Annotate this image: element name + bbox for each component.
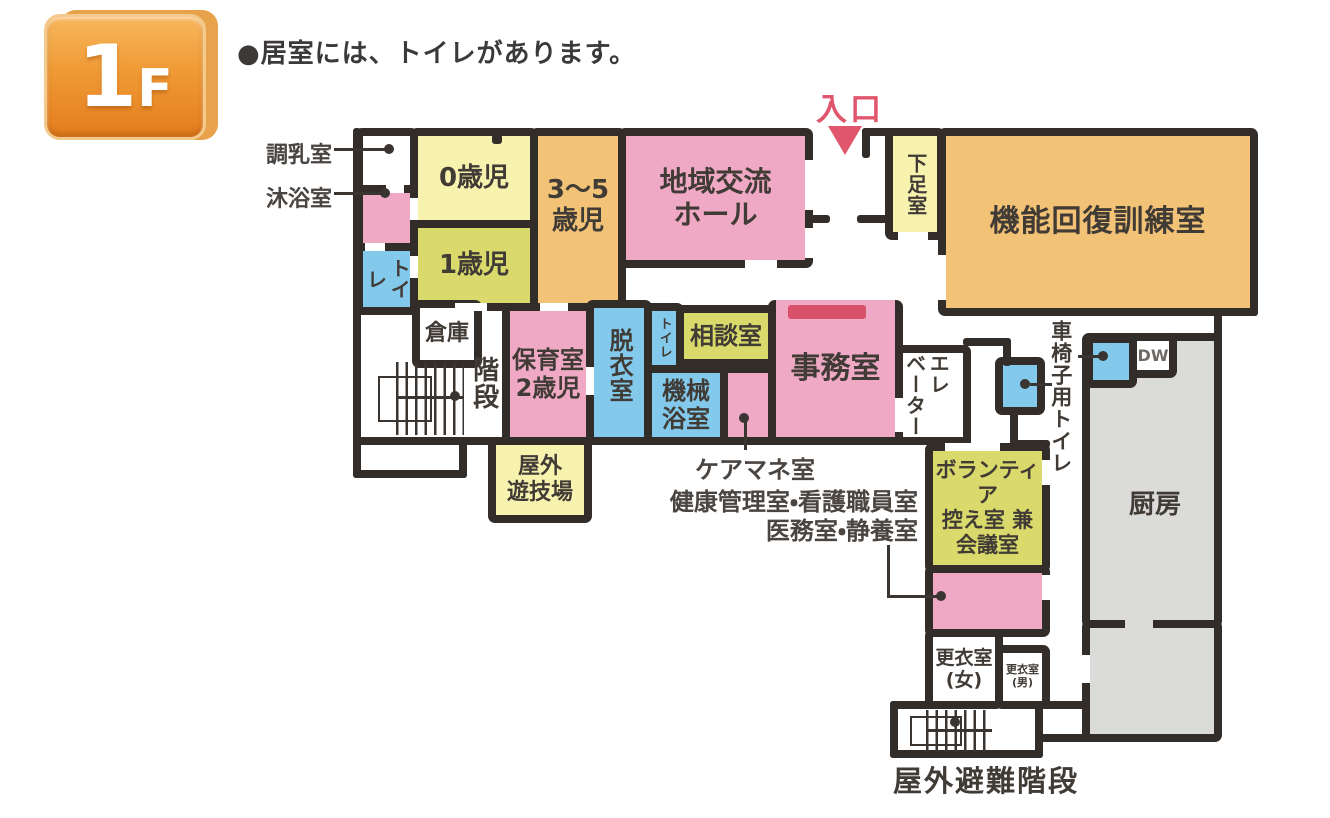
door-gap [805, 228, 813, 258]
bathing-room-dot [380, 188, 390, 198]
room-office-label: 事務室 [791, 351, 881, 386]
room-toilet-small-label: トイレ [656, 317, 671, 359]
room-nursery-3to5-line1: 3〜5 [547, 175, 609, 206]
wall [862, 128, 870, 158]
milk-room-label: 調乳室 [250, 137, 332, 169]
wheelchair-toilet-label: 車椅子用トイレ [1048, 320, 1073, 490]
wall [1003, 338, 1011, 366]
room-machine-bath: 機械 浴室 [644, 365, 728, 445]
room-consultation: 相談室 [676, 305, 776, 367]
milk-room-dot [384, 144, 394, 154]
room-kitchen-lower [1082, 620, 1222, 742]
medical-dot [936, 591, 946, 601]
room-toilet-left: トイレ [355, 243, 418, 315]
medical-leader-h [887, 595, 941, 598]
room-nursery-1: 1歳児 [410, 220, 538, 311]
room-machine-bath-label: 機械 浴室 [662, 377, 710, 434]
care-manager-label: ケアマネ室 [695, 450, 845, 485]
medical-rest-label: 医務室・静養室 [628, 511, 918, 546]
room-nursery-0: 0歳児 [410, 128, 538, 228]
room-locker-women: 更衣室 (女) [925, 629, 1003, 709]
room-community-hall-line2: ホール [659, 198, 771, 231]
stairs-dot [450, 391, 460, 401]
room-nursery-0-label: 0歳児 [439, 163, 509, 194]
room-volunteer-line1: ボランティア [933, 458, 1042, 508]
room-community-hall-label: 地域交流 ホール [659, 165, 771, 231]
room-toilet-left-label: トイレ [363, 251, 410, 307]
wall [1010, 412, 1018, 448]
door-gap [365, 243, 385, 251]
room-community-hall: 地域交流 ホール [618, 128, 813, 268]
room-milk [355, 128, 418, 193]
care-manager-dot [739, 413, 749, 423]
bathing-room-label: 沐浴室 [250, 181, 332, 213]
escape-stairs-dot [950, 717, 960, 727]
room-kitchen-label: 厨房 [1100, 490, 1210, 521]
floorplan-canvas: 1F ●居室には、トイレがあります。 入口 トイレ 0歳児 1歳児 3〜5 歳児… [0, 0, 1330, 818]
room-shoe: 下足室 [885, 128, 945, 240]
room-nursery-2-label: 保育室 2歳児 [512, 346, 584, 403]
wall [353, 128, 361, 478]
room-machine-bath-line2: 浴室 [662, 405, 710, 433]
room-volunteer-label: ボランティア 控え室 兼 会議室 [933, 458, 1042, 557]
room-rehab-label: 機能回復訓練室 [990, 204, 1207, 239]
room-office: 事務室 [768, 300, 903, 445]
room-locker-women-label: 更衣室 (女) [935, 647, 992, 692]
room-locker-men: 更衣室 (男) [995, 645, 1050, 709]
wall [353, 470, 467, 478]
room-nursery-3to5-line2: 歳児 [547, 206, 609, 237]
door-gap [805, 160, 813, 210]
wheelchair-a-dot [1020, 379, 1030, 389]
door-gap [945, 443, 1000, 451]
room-playground-line1: 屋外 [507, 454, 573, 480]
note-text: ●居室には、トイレがあります。 [237, 33, 636, 70]
floor-badge-face: 1F [44, 14, 206, 140]
room-undressing: 脱衣室 [586, 300, 652, 445]
wall [1214, 308, 1222, 341]
room-shoe-label: 下足室 [903, 153, 927, 216]
wall [492, 134, 502, 144]
door-gap [586, 367, 594, 395]
room-community-hall-line1: 地域交流 [659, 165, 771, 198]
medical-leader-v [887, 545, 890, 598]
room-nursery-2: 保育室 2歳児 [502, 303, 594, 445]
room-locker-men-label: 更衣室 (男) [1006, 664, 1039, 690]
room-locker-men-line2: (男) [1006, 677, 1039, 690]
room-elevator-col1: エレ [926, 353, 950, 439]
room-nursery-2-line2: 2歳児 [512, 374, 584, 402]
door-gap [1082, 655, 1090, 683]
room-nursery-3to5: 3〜5 歳児 [530, 128, 626, 311]
room-volunteer-line3: 会議室 [933, 533, 1042, 558]
wall [857, 215, 887, 223]
room-playground-line2: 遊技場 [507, 480, 573, 506]
wall [1035, 701, 1043, 758]
door-gap [895, 398, 903, 432]
wheelchair-a-leader [1030, 383, 1052, 386]
door-gap [410, 256, 418, 278]
room-elevator-col2: ベーター [902, 353, 926, 439]
wheelchair-b-dot [1098, 351, 1108, 361]
room-medical [925, 565, 1050, 637]
door-gap [540, 303, 568, 311]
entrance-arrow-icon [828, 126, 862, 155]
door-gap [1042, 460, 1050, 485]
door-gap [1042, 575, 1050, 600]
wall [1035, 734, 1090, 742]
kitchen-door-gap [1125, 620, 1153, 628]
room-nursery-2-line1: 保育室 [512, 346, 584, 374]
wall [1042, 701, 1090, 709]
wall [805, 215, 830, 223]
floor-number: 1 [77, 17, 137, 137]
stairs-rail [378, 376, 432, 422]
door-gap [898, 232, 928, 240]
room-consultation-label: 相談室 [690, 322, 762, 350]
room-volunteer-line2: 控え室 兼 [933, 508, 1042, 533]
room-machine-bath-line1: 機械 [662, 377, 710, 405]
room-nursery-1-label: 1歳児 [439, 250, 509, 281]
room-storage-label: 倉庫 [425, 321, 469, 347]
door-gap [938, 255, 946, 300]
room-stairs-label: 階段 [468, 356, 499, 446]
escape-stairs-label: 屋外避難階段 [893, 758, 1113, 800]
room-undressing-label: 脱衣室 [605, 328, 633, 403]
floor-suffix: F [137, 29, 173, 149]
room-locker-women-line2: (女) [935, 669, 992, 691]
entrance-label: 入口 [810, 84, 890, 129]
wall [353, 437, 971, 445]
room-elevator-label: エレ ベーター [902, 353, 949, 439]
room-rehab: 機能回復訓練室 [938, 128, 1258, 316]
room-playground: 屋外 遊技場 [488, 437, 592, 523]
wall [890, 701, 935, 709]
room-locker-women-line1: 更衣室 [935, 647, 992, 669]
office-counter [788, 305, 866, 319]
care-manager-leader [744, 420, 747, 450]
room-dumbwaiter: DW [1129, 333, 1177, 378]
room-dumbwaiter-label: DW [1138, 346, 1169, 365]
room-playground-label: 屋外 遊技場 [507, 454, 573, 506]
door-gap [745, 260, 777, 268]
room-nursery-3to5-label: 3〜5 歳児 [547, 175, 609, 236]
door-gap [455, 303, 487, 311]
door-gap [410, 198, 418, 220]
room-volunteer: ボランティア 控え室 兼 会議室 [925, 443, 1050, 573]
